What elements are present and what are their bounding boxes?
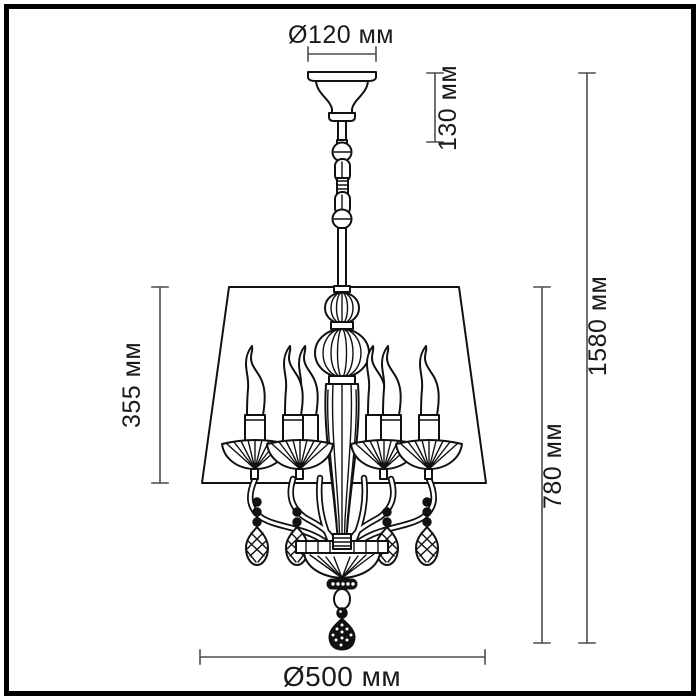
dimension-shade-diameter: Ø500 мм: [200, 650, 485, 692]
dimension-canopy-diameter: Ø120 мм: [288, 21, 394, 61]
chandelier-line-drawing: [202, 72, 486, 650]
suspension-chain: [333, 121, 352, 292]
label-suspension-height: 130 мм: [434, 65, 462, 151]
label-shade-diameter: Ø500 мм: [283, 661, 401, 692]
dimension-body-height: 780 мм: [534, 287, 567, 643]
dimension-total-height: 1580 мм: [579, 73, 612, 643]
dimension-suspension-height: 130 мм: [427, 65, 462, 151]
dimension-shade-height: 355 мм: [118, 287, 168, 483]
label-total-height: 1580 мм: [584, 276, 612, 376]
label-shade-height: 355 мм: [118, 342, 146, 428]
bottom-hub: [296, 534, 388, 650]
ceiling-canopy: [308, 72, 376, 121]
diagram-canvas: Ø120 мм 130 мм 355 мм 780 мм 1580 мм Ø50…: [0, 0, 700, 700]
label-body-height: 780 мм: [539, 423, 567, 509]
label-canopy-diameter: Ø120 мм: [288, 21, 394, 49]
